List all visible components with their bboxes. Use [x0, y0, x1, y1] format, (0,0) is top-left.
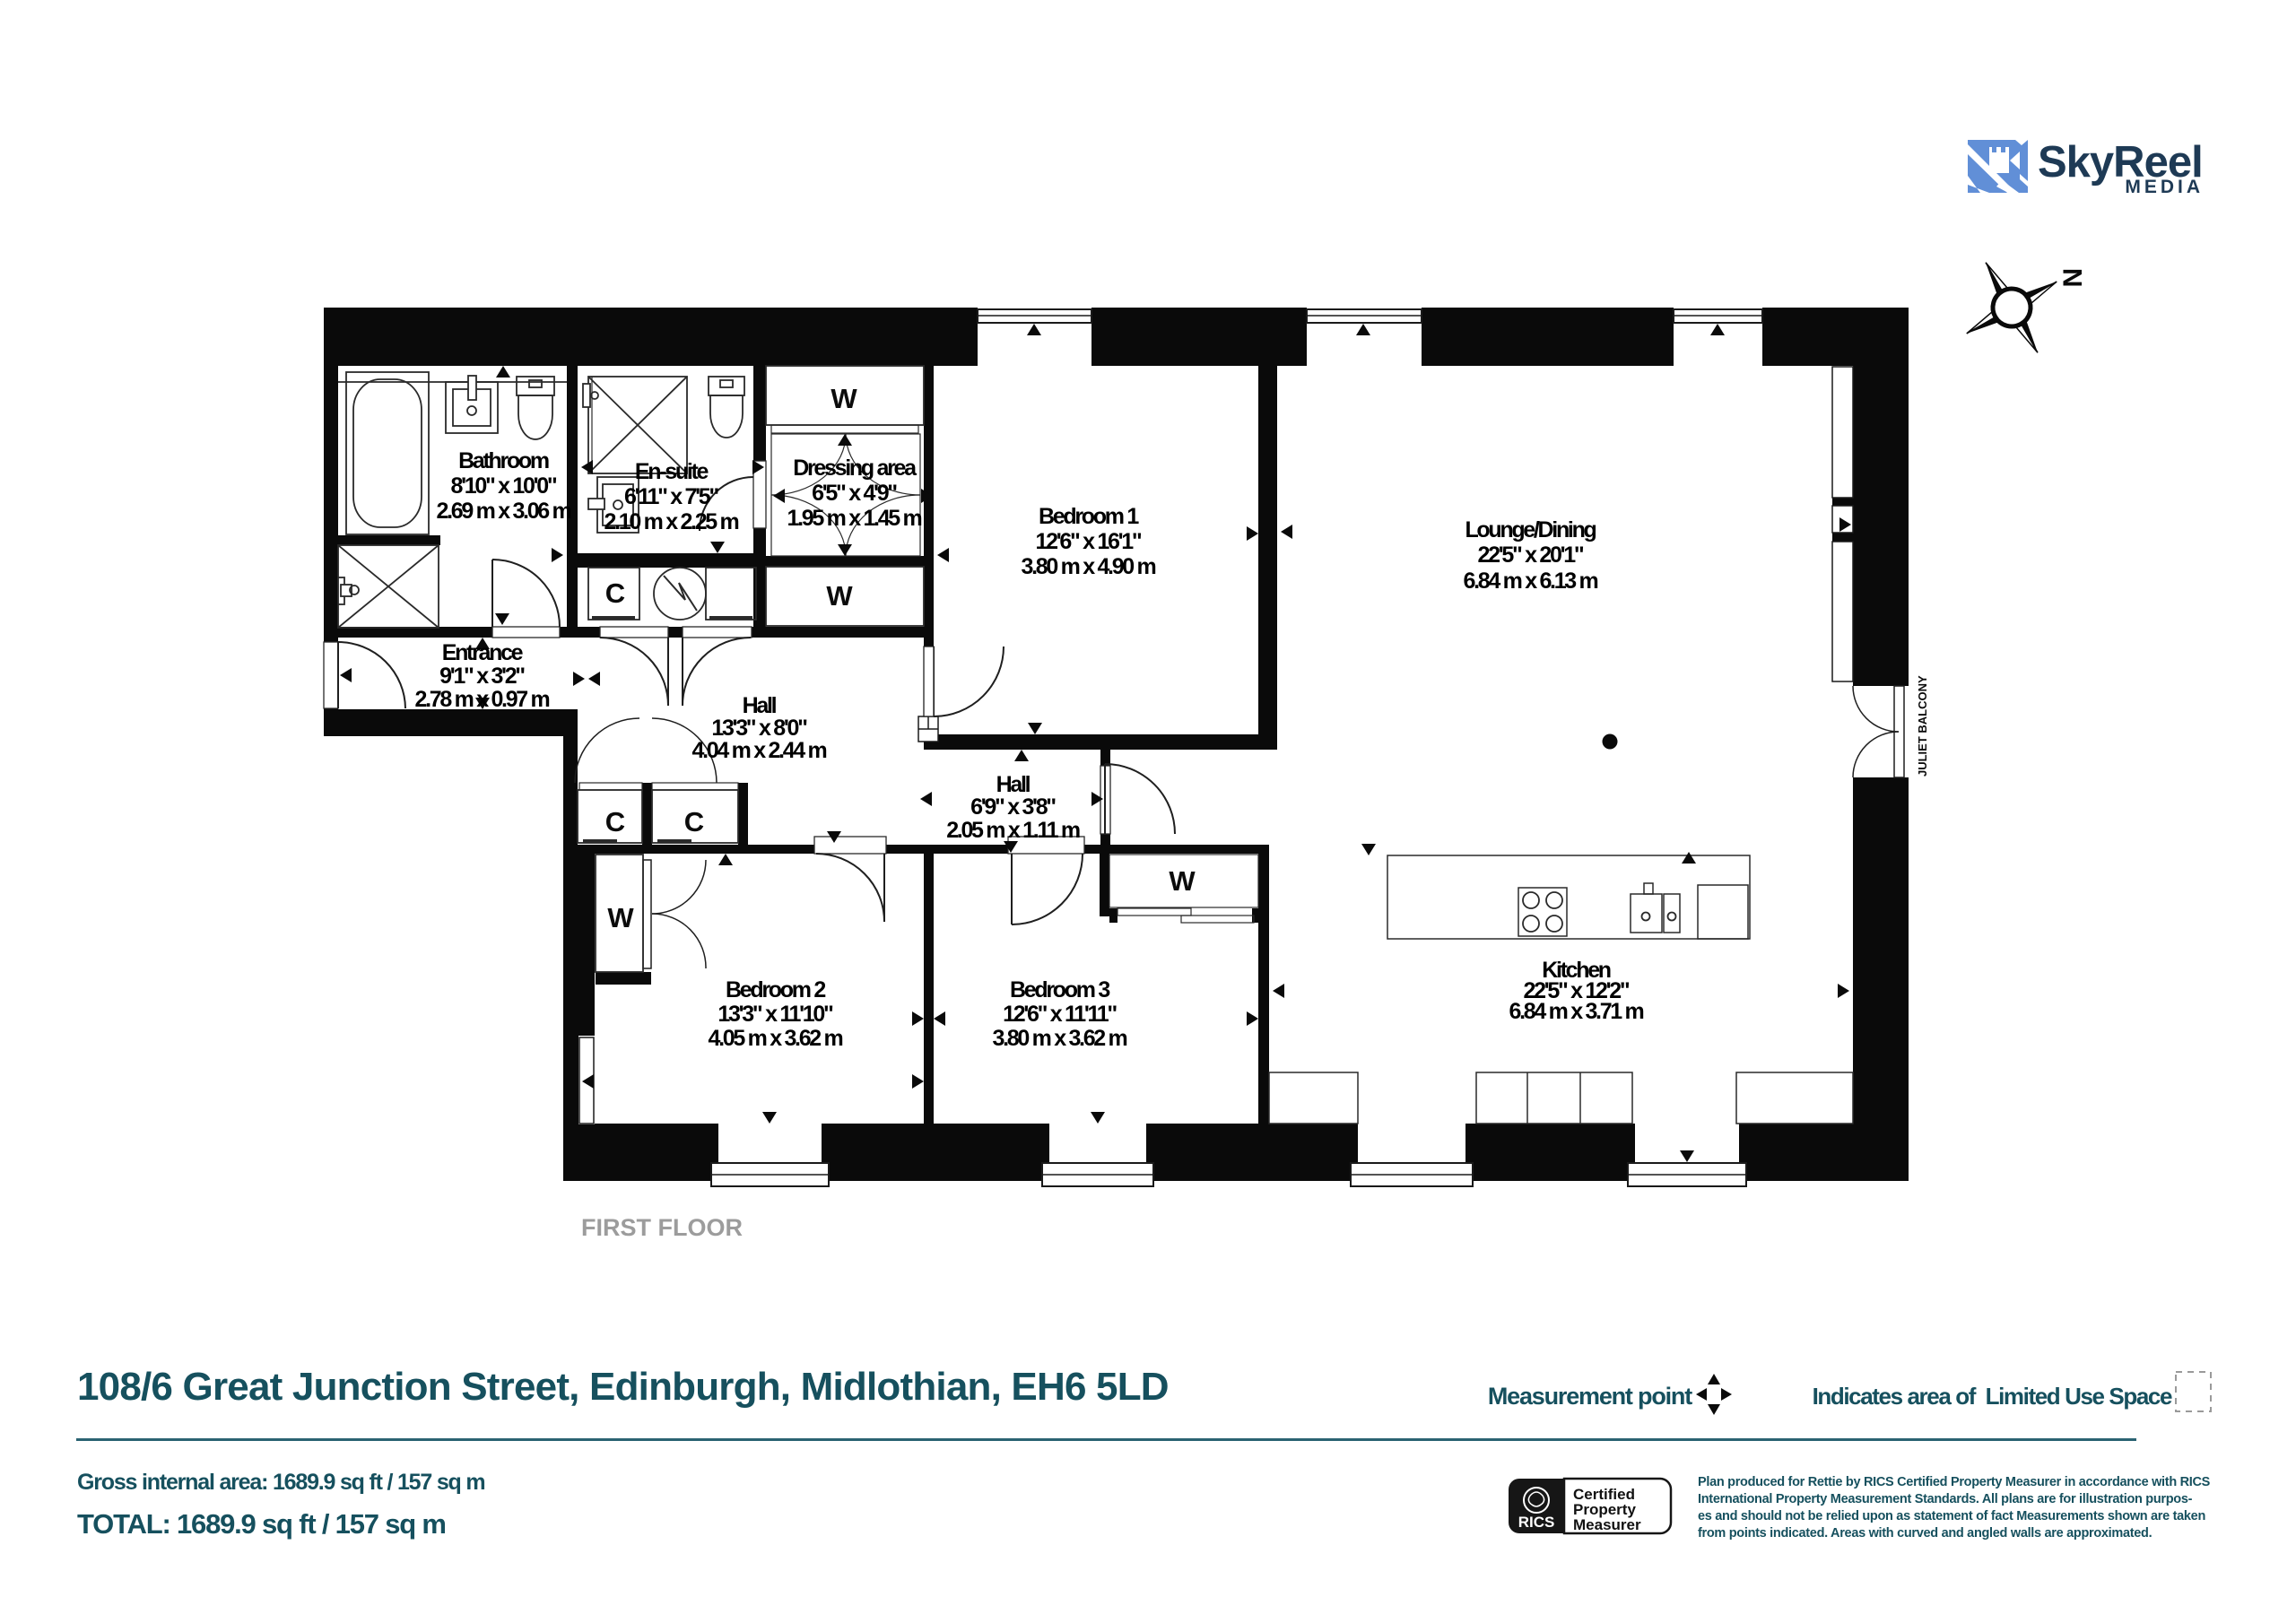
- svg-text:Dressing area: Dressing area: [793, 456, 918, 481]
- svg-text:Bedroom 3: Bedroom 3: [1010, 977, 1109, 1002]
- svg-text:3.80 m x 4.90 m: 3.80 m x 4.90 m: [1022, 554, 1156, 579]
- svg-text:8'10" x 10'0": 8'10" x 10'0": [451, 473, 557, 499]
- svg-text:from points indicated. Areas w: from points indicated. Areas with curved…: [1698, 1526, 2152, 1541]
- svg-text:W: W: [831, 383, 857, 414]
- svg-text:12'6" x 16'1": 12'6" x 16'1": [1036, 529, 1142, 554]
- svg-text:Indicates area of Limited Use: Indicates area of Limited Use Space: [1813, 1383, 2172, 1410]
- svg-text:6'9" x 3'8": 6'9" x 3'8": [970, 794, 1056, 820]
- svg-text:13'3" x 11'10": 13'3" x 11'10": [717, 1002, 833, 1027]
- svg-text:MEDIA: MEDIA: [2125, 177, 2204, 197]
- svg-text:es and should not be relied up: es and should not be relied upon as stat…: [1698, 1509, 2205, 1523]
- svg-text:9'1" x 3'2": 9'1" x 3'2": [439, 664, 525, 689]
- svg-text:Measurement point: Measurement point: [1488, 1383, 1692, 1410]
- svg-text:3.80 m x 3.62 m: 3.80 m x 3.62 m: [993, 1026, 1127, 1051]
- svg-text:6'11" x 7'5": 6'11" x 7'5": [624, 484, 718, 509]
- svg-text:W: W: [826, 580, 853, 612]
- svg-text:2.10 m x 2.25 m: 2.10 m x 2.25 m: [604, 509, 739, 534]
- svg-text:W: W: [607, 902, 634, 933]
- svg-text:Hall: Hall: [996, 772, 1031, 797]
- svg-text:C: C: [605, 577, 625, 609]
- svg-text:2.05 m x 1.11 m: 2.05 m x 1.11 m: [946, 818, 1080, 843]
- svg-text:TOTAL: 1689.9 sq ft / 157 sq m: TOTAL: 1689.9 sq ft / 157 sq m: [77, 1508, 446, 1540]
- svg-text:6.84 m x 3.71 m: 6.84 m x 3.71 m: [1509, 999, 1644, 1024]
- svg-text:22'5" x 20'1": 22'5" x 20'1": [1478, 542, 1584, 568]
- svg-text:W: W: [1169, 865, 1196, 897]
- svg-text:4.04 m x 2.44 m: 4.04 m x 2.44 m: [692, 738, 827, 763]
- svg-text:13'3" x 8'0": 13'3" x 8'0": [711, 716, 807, 741]
- svg-text:2.69 m x 3.06 m: 2.69 m x 3.06 m: [437, 499, 571, 524]
- svg-text:6.84 m x 6.13 m: 6.84 m x 6.13 m: [1464, 568, 1598, 594]
- svg-text:Plan produced for Rettie by RI: Plan produced for Rettie by RICS Certifi…: [1698, 1475, 2211, 1489]
- svg-text:Entrance: Entrance: [442, 640, 524, 665]
- svg-text:C: C: [605, 806, 625, 838]
- svg-text:N: N: [2057, 268, 2087, 288]
- svg-text:12'6" x 11'11": 12'6" x 11'11": [1003, 1002, 1117, 1027]
- svg-text:JULIET BALCONY: JULIET BALCONY: [1916, 675, 1929, 777]
- svg-text:RICS: RICS: [1518, 1514, 1555, 1531]
- svg-text:Measurer: Measurer: [1573, 1516, 1641, 1533]
- svg-text:International Property Measur: International Property Measurement Stand…: [1698, 1492, 2193, 1506]
- svg-text:Gross internal area: 1689.9 sq: Gross internal area: 1689.9 sq ft / 157 …: [77, 1470, 484, 1495]
- svg-text:C: C: [684, 806, 704, 838]
- svg-text:2.78 m x 0.97 m: 2.78 m x 0.97 m: [415, 687, 550, 712]
- svg-text:Bedroom 1: Bedroom 1: [1039, 504, 1139, 529]
- svg-text:Bathroom: Bathroom: [458, 448, 549, 473]
- svg-text:108/6 Great Junction Street, E: 108/6 Great Junction Street, Edinburgh, …: [77, 1365, 1169, 1409]
- svg-text:4.05 m x 3.62 m: 4.05 m x 3.62 m: [709, 1026, 843, 1051]
- svg-text:Hall: Hall: [743, 693, 777, 718]
- svg-text:Lounge/Dining: Lounge/Dining: [1465, 517, 1596, 542]
- svg-text:Bedroom 2: Bedroom 2: [726, 977, 825, 1002]
- svg-text:En-suite: En-suite: [635, 459, 709, 484]
- svg-text:1.95 m x 1.45 m: 1.95 m x 1.45 m: [787, 506, 922, 531]
- svg-text:FIRST FLOOR: FIRST FLOOR: [581, 1214, 743, 1241]
- svg-text:6'5" x 4'9": 6'5" x 4'9": [812, 481, 897, 506]
